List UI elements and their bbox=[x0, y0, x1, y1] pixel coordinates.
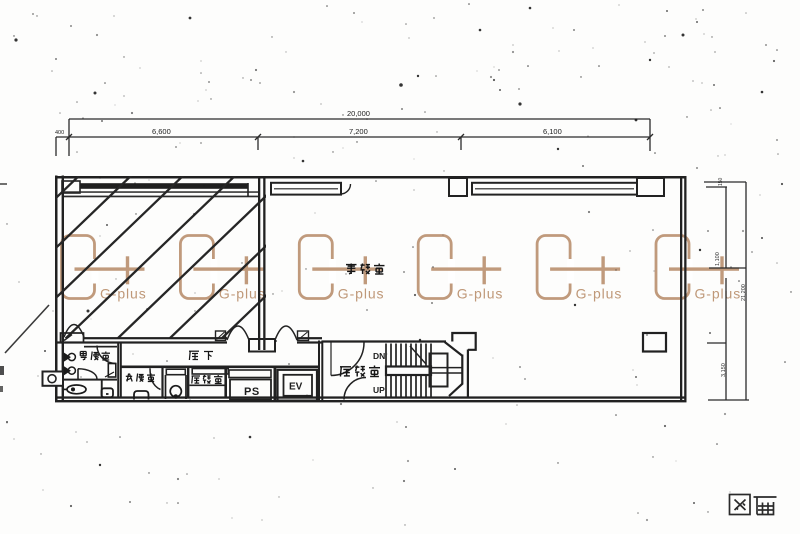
svg-text:DN: DN bbox=[373, 351, 385, 361]
svg-text:150: 150 bbox=[718, 177, 724, 186]
svg-text:6,100: 6,100 bbox=[543, 127, 562, 136]
svg-text:G-plus: G-plus bbox=[457, 285, 504, 301]
svg-text:20,000: 20,000 bbox=[347, 109, 370, 118]
svg-text:7,200: 7,200 bbox=[349, 127, 368, 136]
svg-text:G-plus: G-plus bbox=[695, 285, 742, 301]
svg-text:G-plus: G-plus bbox=[576, 285, 623, 301]
svg-text:3,150: 3,150 bbox=[721, 363, 727, 377]
svg-text:1,100: 1,100 bbox=[715, 252, 721, 266]
svg-text:EV: EV bbox=[289, 382, 303, 393]
svg-text:UP: UP bbox=[373, 385, 385, 395]
svg-text:6,600: 6,600 bbox=[152, 127, 171, 136]
svg-text:400: 400 bbox=[55, 130, 64, 136]
svg-text:PS: PS bbox=[244, 386, 260, 398]
svg-text:G-plus: G-plus bbox=[338, 285, 385, 301]
svg-text:21,200: 21,200 bbox=[741, 284, 747, 301]
